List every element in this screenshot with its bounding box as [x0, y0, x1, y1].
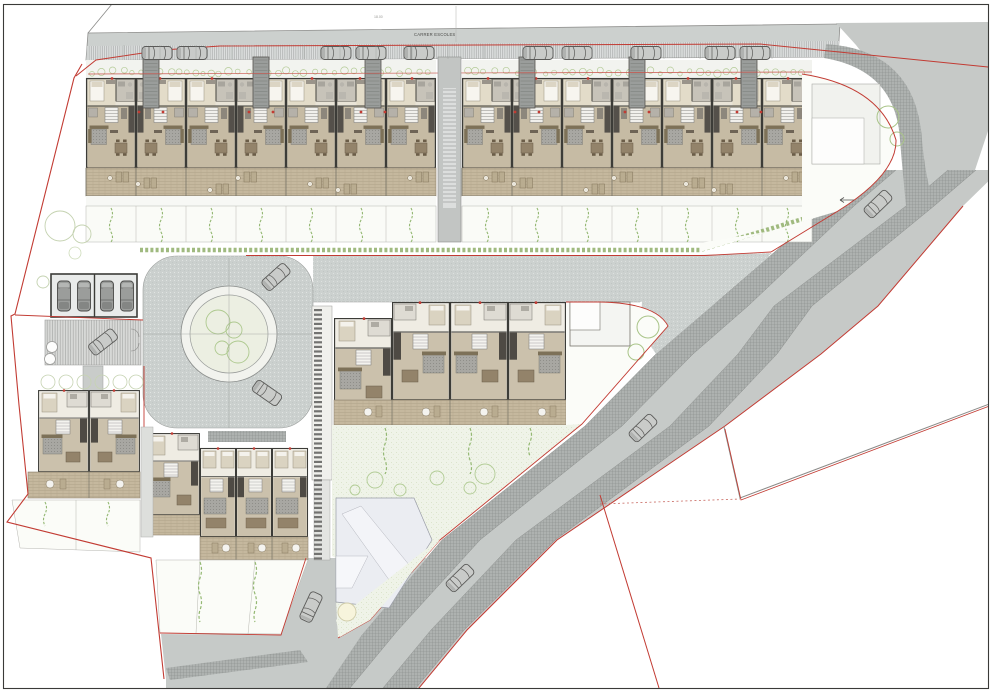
svg-text:18.00: 18.00 [374, 15, 383, 19]
svg-text:CARRER ESCOLES: CARRER ESCOLES [414, 32, 455, 37]
